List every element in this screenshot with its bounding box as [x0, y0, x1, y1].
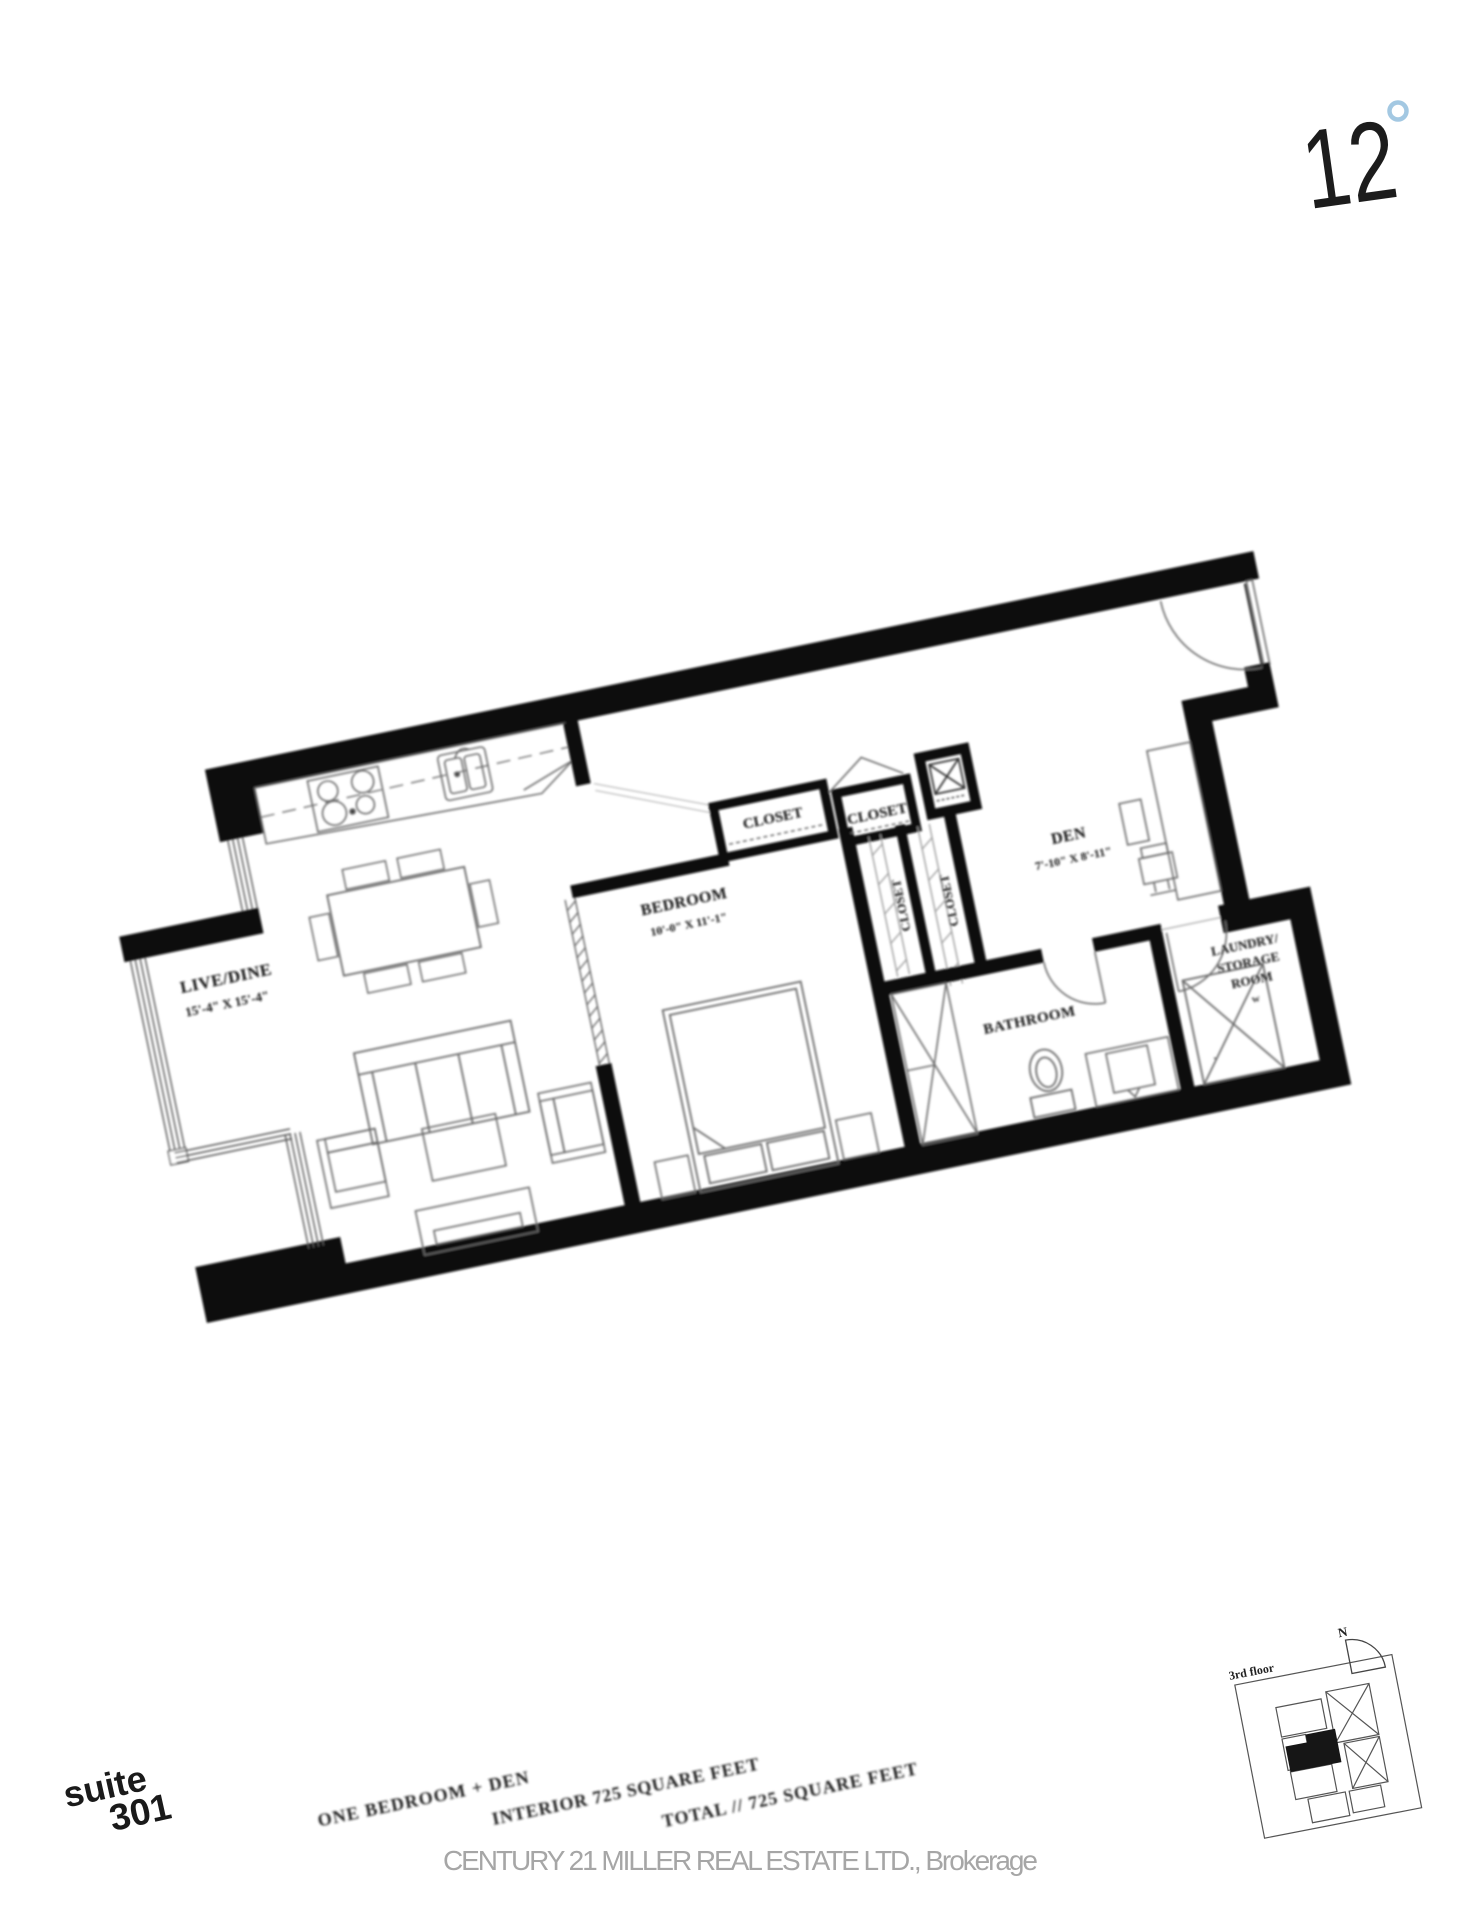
svg-text:CENTURY 21 MILLER REAL ESTATE: CENTURY 21 MILLER REAL ESTATE LTD., Brok… — [443, 1845, 1038, 1876]
svg-text:12: 12 — [1295, 96, 1404, 233]
